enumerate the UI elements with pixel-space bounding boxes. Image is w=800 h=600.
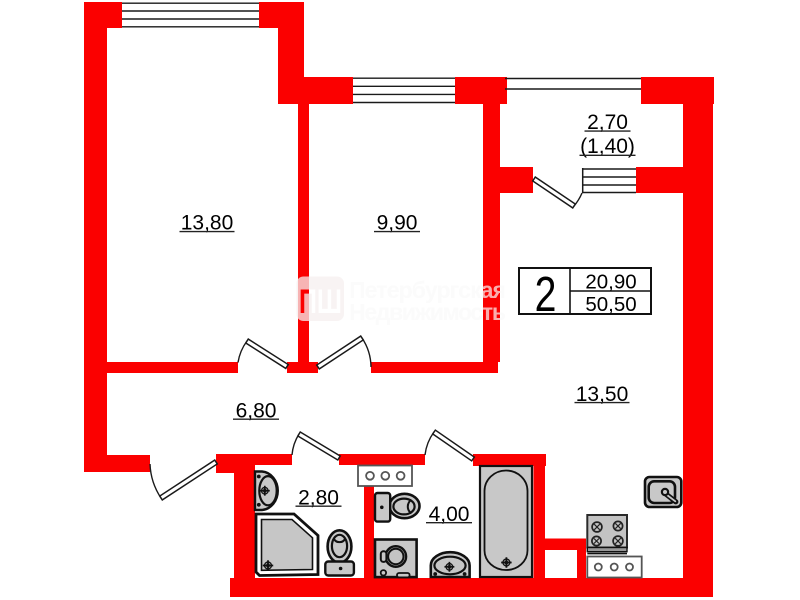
svg-text:20,90: 20,90: [585, 271, 636, 294]
svg-text:Недвижимость: Недвижимость: [349, 299, 506, 325]
svg-text:(1,40): (1,40): [580, 135, 635, 158]
svg-text:50,50: 50,50: [585, 293, 636, 316]
svg-text:2: 2: [535, 268, 557, 322]
